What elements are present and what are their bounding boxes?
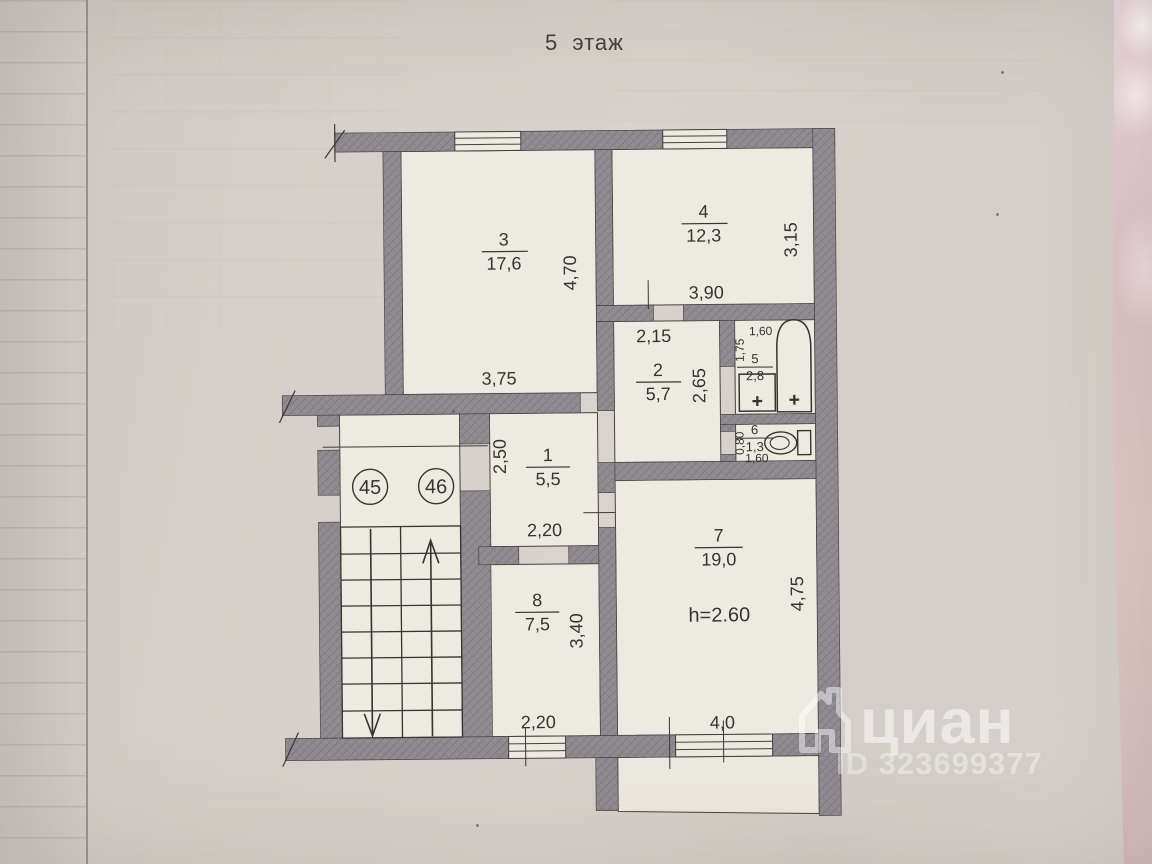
room-4-number: 4 (698, 202, 708, 222)
dim-room-2-depth: 2,65 (689, 368, 709, 403)
room-8-number: 8 (532, 590, 542, 610)
watermark-listing-id: ID 323699377 (836, 748, 1043, 779)
dim-room-3-depth: 4,70 (560, 255, 580, 290)
dim-room-3-width: 3,75 (481, 368, 516, 388)
window-icon (663, 129, 727, 149)
watermark-brand: циан (860, 691, 1015, 754)
room-3-area: 17,6 (486, 253, 521, 273)
room-5-number: 5 (751, 351, 758, 366)
dim-room-1-depth: 2,50 (490, 439, 510, 474)
dim-room-8-width: 2,20 (521, 712, 556, 732)
dim-room-5-depth: 1,75 (733, 338, 747, 362)
paper-speck (476, 824, 479, 827)
dim-room-1-width: 2,20 (527, 520, 562, 540)
dim-room-2-width: 2,15 (636, 326, 671, 346)
room-2-area: 5,7 (646, 384, 671, 404)
bathtub-tap-mark: + (789, 390, 800, 410)
bleed-through-rows (610, 0, 1040, 122)
watermark: циан ID 323699377 (796, 680, 1043, 779)
room-4-area: 12,3 (686, 225, 721, 245)
paper-speck (452, 410, 455, 413)
sink-tap-mark: + (752, 391, 763, 411)
apartment-number-46: 46 (425, 476, 447, 498)
floor-title: 5 этаж (545, 30, 624, 56)
room-5-area: 2,8 (746, 368, 764, 383)
dim-room-5-width: 1,60 (749, 324, 773, 338)
room-1-area: 5,5 (535, 469, 560, 489)
room-7-area: 19,0 (701, 549, 736, 569)
photo-of-floor-plan: { "title": "5 этаж", "plan": { "ceiling_… (0, 0, 1152, 864)
room-2-number: 2 (653, 360, 663, 380)
window-icon (509, 736, 566, 759)
dim-room-4-depth: 3,15 (781, 222, 801, 257)
dim-room-8-depth: 3,40 (566, 613, 586, 648)
apartment-number-45: 45 (359, 477, 381, 499)
dim-room-4-width: 3,90 (689, 282, 724, 302)
room-6-number: 6 (751, 422, 758, 437)
room-8-area: 7,5 (525, 614, 550, 634)
room-7-number: 7 (713, 525, 723, 545)
paper-speck (1001, 71, 1004, 74)
room-floors (337, 148, 819, 819)
room-1-number: 1 (543, 445, 553, 465)
room-3-number: 3 (499, 229, 509, 249)
floor-plan-drawing: + + 45 46 3 17,6 4 12,3 2 5,7 1 5,5 (275, 115, 848, 832)
paper-speck (996, 213, 999, 216)
dim-room-6-width: 1,60 (745, 451, 769, 465)
house-logo-icon (796, 680, 854, 754)
window-icon (455, 131, 521, 151)
underlying-notebook-page (0, 0, 88, 864)
balcony-floor (618, 756, 820, 816)
ceiling-height-label: h=2.60 (688, 604, 750, 627)
dim-room-7-width: 4,0 (710, 712, 735, 732)
dim-room-7-depth: 4,75 (787, 576, 807, 611)
